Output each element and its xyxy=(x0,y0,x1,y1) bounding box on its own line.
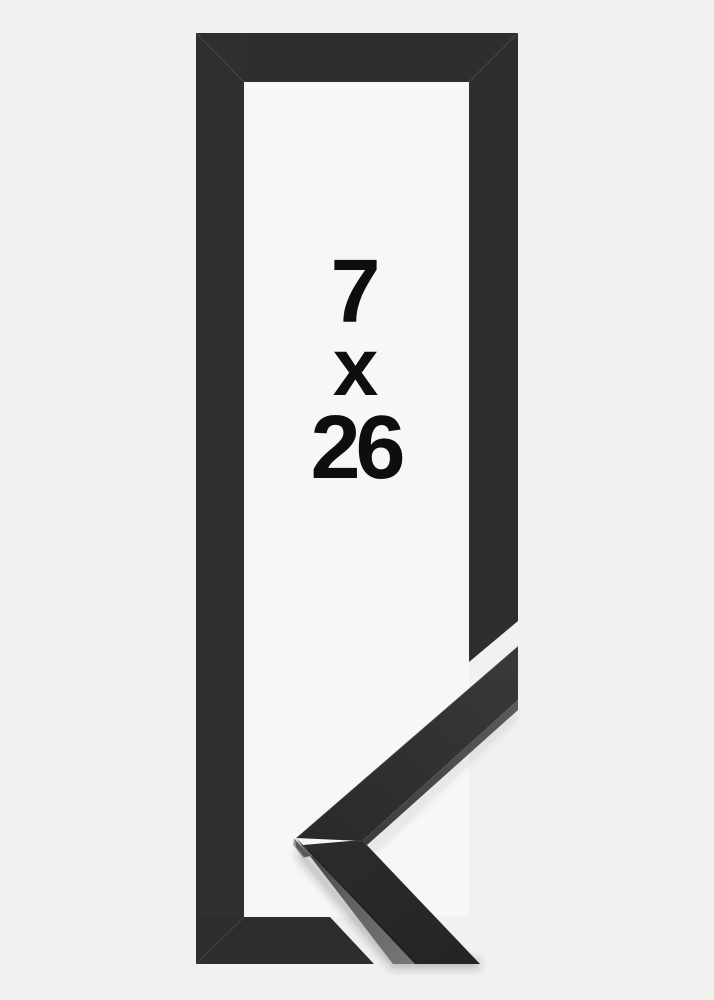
frame-right-bar xyxy=(469,82,518,662)
frame-top-bar xyxy=(196,33,518,82)
frame-left-bar xyxy=(196,33,244,964)
frame-graphic xyxy=(0,0,714,1000)
product-image[interactable]: 7 x 26 xyxy=(0,0,714,1000)
